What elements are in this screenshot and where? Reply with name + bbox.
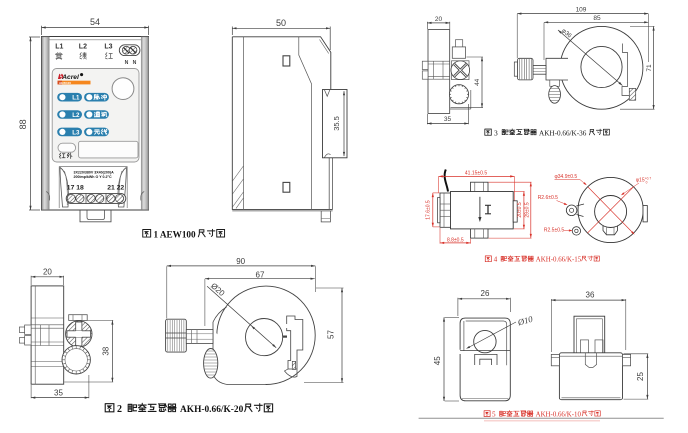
svg-text:35: 35 xyxy=(444,116,452,123)
svg-text:17 18: 17 18 xyxy=(67,185,84,192)
svg-text:88: 88 xyxy=(18,119,28,129)
svg-text:45: 45 xyxy=(433,356,442,365)
svg-text:L3: L3 xyxy=(72,129,80,136)
svg-text:20±0.5: 20±0.5 xyxy=(517,202,523,217)
svg-text:17.6±0.5: 17.6±0.5 xyxy=(426,200,432,220)
svg-text:41.15±0.5: 41.15±0.5 xyxy=(465,170,487,176)
svg-text:4: 4 xyxy=(494,256,498,264)
svg-text:20: 20 xyxy=(43,268,52,277)
svg-text:5: 5 xyxy=(492,411,496,419)
svg-text:Acrel: Acrel xyxy=(61,74,79,81)
svg-text:AKH-0.66/K-10: AKH-0.66/K-10 xyxy=(536,412,582,419)
svg-text:L2: L2 xyxy=(79,44,87,51)
svg-text:44: 44 xyxy=(474,78,481,86)
svg-text:L1: L1 xyxy=(72,95,80,102)
svg-text:8.8±0.5: 8.8±0.5 xyxy=(447,237,464,243)
svg-text:0: 0 xyxy=(646,180,648,184)
svg-text:φ15: φ15 xyxy=(636,178,645,184)
svg-text:85: 85 xyxy=(593,15,601,22)
svg-text:36: 36 xyxy=(586,291,595,300)
svg-text:25: 25 xyxy=(636,372,645,381)
svg-text:200imp/kWh O Y 0.2°C: 200imp/kWh O Y 0.2°C xyxy=(74,175,112,179)
svg-text:35: 35 xyxy=(54,388,63,397)
svg-text:AKH-0.66/K-36: AKH-0.66/K-36 xyxy=(539,129,587,137)
svg-text:R2.5±0.5: R2.5±0.5 xyxy=(544,228,564,234)
svg-text:AKH-0.66/K-20: AKH-0.66/K-20 xyxy=(180,405,244,415)
svg-text:67: 67 xyxy=(256,271,265,280)
svg-text:26: 26 xyxy=(481,289,490,298)
svg-text:29±0.5: 29±0.5 xyxy=(524,202,530,217)
svg-text:35.5: 35.5 xyxy=(332,116,341,131)
svg-text:50: 50 xyxy=(276,18,286,28)
svg-text:AKH-0.66/K-15: AKH-0.66/K-15 xyxy=(536,257,582,264)
svg-text:N: N xyxy=(125,60,129,66)
svg-text:1 AEW100: 1 AEW100 xyxy=(154,230,197,240)
svg-text:N: N xyxy=(133,60,137,66)
svg-text:109: 109 xyxy=(576,7,587,14)
svg-text:54: 54 xyxy=(90,17,100,27)
svg-text:R2.6±0.5: R2.6±0.5 xyxy=(538,195,558,201)
svg-text:3: 3 xyxy=(494,128,498,137)
svg-text:57: 57 xyxy=(327,330,336,339)
svg-text:L1: L1 xyxy=(55,44,63,51)
svg-text:20: 20 xyxy=(435,16,443,23)
svg-text:90: 90 xyxy=(236,257,245,266)
svg-text:L3: L3 xyxy=(104,44,112,51)
svg-text:L2: L2 xyxy=(72,112,80,119)
svg-text:38: 38 xyxy=(102,346,111,355)
svg-text:71: 71 xyxy=(646,64,653,72)
svg-text:3X220/380V 3X40(200)A: 3X220/380V 3X40(200)A xyxy=(74,171,115,175)
svg-text:21 22: 21 22 xyxy=(107,185,124,192)
svg-text:φ34.9±0.5: φ34.9±0.5 xyxy=(555,174,578,180)
svg-text:2: 2 xyxy=(117,404,122,415)
svg-text:AEW100: AEW100 xyxy=(59,81,71,85)
